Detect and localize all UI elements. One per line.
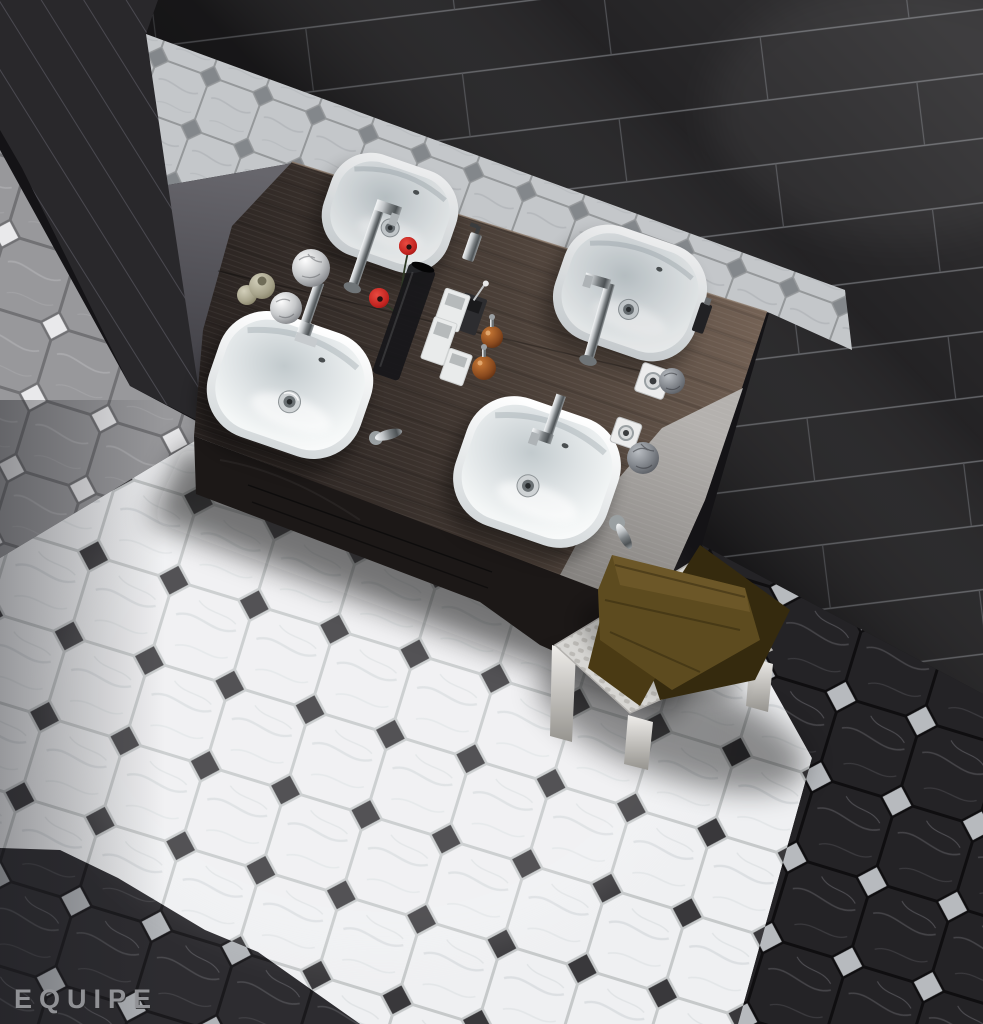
bathroom-render: EQUIPE EQUIPE bbox=[0, 0, 983, 1024]
stool-leg-front bbox=[624, 715, 653, 770]
decor-sphere-silver-2 bbox=[270, 292, 302, 324]
floor-left-shadow bbox=[0, 400, 165, 1024]
brand-logo: EQUIPE EQUIPE bbox=[14, 984, 159, 1015]
brand-logo-text: EQUIPE bbox=[14, 984, 158, 1014]
decor-sphere-silver-1 bbox=[292, 249, 330, 287]
